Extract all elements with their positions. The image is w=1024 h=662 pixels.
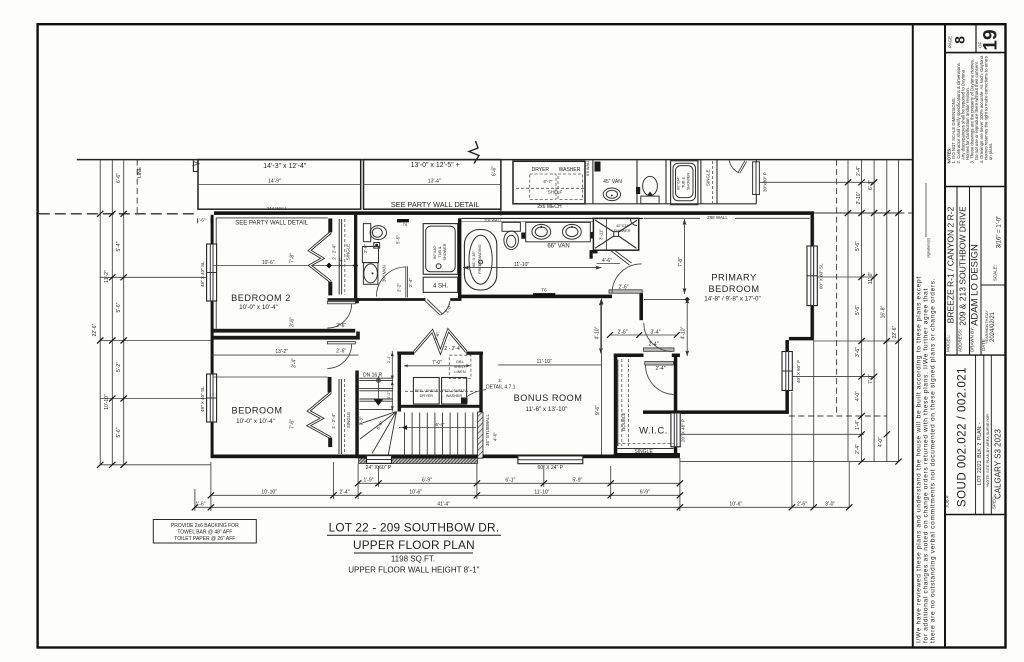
- svg-text:W.I.C.: W.I.C.: [639, 426, 668, 437]
- svg-text:2'-6": 2'-6": [618, 329, 628, 335]
- svg-text:4'-0": 4'-0": [855, 391, 861, 401]
- svg-text:6'8 WALL: 6'8 WALL: [586, 160, 590, 176]
- svg-text:BONUS ROOM: BONUS ROOM: [514, 393, 583, 403]
- svg-text:288 WALL: 288 WALL: [707, 215, 728, 220]
- svg-text:6'-1": 6'-1": [505, 478, 515, 484]
- svg-text:BREEZE R-1 / CANYON 2 R-2: BREEZE R-1 / CANYON 2 R-2: [946, 206, 956, 323]
- svg-text:7'-8": 7'-8": [678, 257, 684, 267]
- svg-text:4'-6": 4'-6": [493, 432, 498, 441]
- svg-text:16'-8": 16'-8": [881, 305, 887, 318]
- svg-text:11'-10": 11'-10": [537, 359, 552, 365]
- svg-text:40" X 60" P: 40" X 60" P: [796, 360, 801, 383]
- svg-text:MODEL:: MODEL:: [946, 335, 951, 352]
- svg-text:22'-6": 22'-6": [892, 325, 898, 338]
- svg-text:4'-10": 4'-10": [594, 326, 600, 339]
- svg-text:TOWEL BAR @ 48" AFF: TOWEL BAR @ 48" AFF: [177, 530, 232, 536]
- svg-text:10'-6": 10'-6": [262, 260, 275, 266]
- svg-text:10'-6": 10'-6": [409, 490, 422, 496]
- svg-text:SHELF: SHELF: [548, 190, 563, 195]
- svg-text:SEE PARTY WALL DETAIL: SEE PARTY WALL DETAIL: [235, 221, 308, 227]
- svg-text:2'-4": 2'-4": [856, 166, 862, 176]
- svg-text:T6: T6: [403, 223, 407, 227]
- svg-text:7'-3": 7'-3": [359, 416, 364, 425]
- svg-text:209 & 213 SOUTHBOW DRIVE: 209 & 213 SOUTHBOW DRIVE: [958, 206, 968, 326]
- svg-text:6'-4": 6'-4": [436, 422, 445, 427]
- svg-text:10'-10": 10'-10": [261, 490, 277, 496]
- svg-text:13'-2": 13'-2": [275, 349, 288, 355]
- svg-text:5'-6": 5'-6": [855, 305, 861, 315]
- svg-text:2'-6": 2'-6": [336, 349, 346, 355]
- svg-text:3'-1": 3'-1": [387, 391, 391, 399]
- svg-text:3:: 3:: [498, 378, 502, 383]
- svg-text:SHOWER: SHOWER: [443, 243, 447, 260]
- svg-text:PROVIDE 2x6 BACKING FOR: PROVIDE 2x6 BACKING FOR: [171, 523, 239, 529]
- svg-text:1'-4": 1'-4": [855, 420, 861, 430]
- svg-text:60" X 60" SL: 60" X 60" SL: [819, 263, 824, 289]
- svg-text:7'-0": 7'-0": [432, 360, 442, 366]
- svg-text:2'-4": 2'-4": [408, 278, 413, 287]
- svg-text:42"X34": 42"X34": [616, 224, 630, 228]
- svg-text:2x6 MECH: 2x6 MECH: [537, 204, 562, 210]
- svg-text:14'-3" x 12'-4": 14'-3" x 12'-4": [263, 163, 307, 170]
- svg-text:4 SH.: 4 SH.: [433, 284, 448, 290]
- svg-text:LINE: LINE: [137, 166, 143, 178]
- svg-text:60"X34": 60"X34": [677, 176, 681, 190]
- svg-text:6'-7": 6'-7": [544, 179, 553, 184]
- svg-text:7'-8": 7'-8": [290, 253, 296, 263]
- svg-text:1'-9": 1'-9": [364, 478, 374, 484]
- svg-text:66" VAN: 66" VAN: [547, 244, 569, 250]
- svg-text:45" VAN: 45" VAN: [603, 179, 622, 185]
- svg-text:LOT 22 - 209 SOUTHBOW DR.: LOT 22 - 209 SOUTHBOW DR.: [329, 521, 500, 535]
- svg-text:ADDRESS:: ADDRESS:: [958, 329, 963, 352]
- svg-text:BEDROOM 2: BEDROOM 2: [231, 293, 291, 303]
- svg-text:10'-0" x 10'-4": 10'-0" x 10'-4": [236, 418, 275, 425]
- svg-text:66" X 36": 66" X 36": [472, 250, 476, 266]
- svg-text:2'-4": 2'-4": [656, 366, 666, 372]
- svg-text:DRYER: DRYER: [532, 167, 550, 173]
- svg-text:3'-4": 3'-4": [651, 329, 661, 335]
- svg-text:4'-10": 4'-10": [681, 326, 687, 339]
- svg-text:20" X 48" P: 20" X 48" P: [681, 419, 686, 442]
- svg-text:6'-9": 6'-9": [422, 478, 432, 484]
- svg-text:SHOWER: SHOWER: [687, 173, 691, 190]
- svg-text:UPPER FLOOR PLAN: UPPER FLOOR PLAN: [353, 538, 475, 552]
- svg-text:4'-0": 4'-0": [878, 437, 884, 447]
- svg-text:5'-6": 5'-6": [116, 302, 122, 312]
- svg-text:2'-2": 2'-2": [397, 283, 402, 292]
- svg-text:3'-6": 3'-6": [855, 347, 861, 357]
- svg-text:2'-4": 2'-4": [855, 444, 861, 454]
- svg-text:2'-4": 2'-4": [340, 490, 350, 496]
- svg-text:SINGLE: SINGLE: [634, 449, 653, 455]
- svg-text:7'-6": 7'-6": [290, 419, 296, 429]
- svg-text:SHOWER: SHOWER: [613, 229, 630, 233]
- svg-text:5'-6": 5'-6": [855, 241, 861, 251]
- svg-text:DRYER: DRYER: [420, 394, 433, 398]
- svg-text:9'-6": 9'-6": [595, 405, 601, 415]
- svg-text:10'-10": 10'-10": [104, 394, 110, 410]
- svg-text:5'-6": 5'-6": [116, 427, 122, 437]
- svg-text:48" X 40" SL: 48" X 40" SL: [200, 261, 205, 287]
- svg-text:1198 SQ.FT.: 1198 SQ.FT.: [391, 555, 435, 564]
- svg-text:10'-0" x 10'-4": 10'-0" x 10'-4": [239, 304, 278, 311]
- svg-text:13'-0" x 12'-5" +: 13'-0" x 12'-5" +: [411, 162, 460, 169]
- svg-text:I/We have reviewed these plans: I/We have reviewed these plans and under…: [916, 276, 923, 643]
- svg-text:there are no outstanding verba: there are no outstanding verbal commitme…: [930, 278, 937, 643]
- svg-text:244 WALL: 244 WALL: [267, 206, 288, 211]
- svg-text:3'-0": 3'-0": [825, 501, 835, 507]
- svg-text:2'-10": 2'-10": [856, 191, 862, 204]
- svg-text:3/16" = 1'-0": 3/16" = 1'-0": [997, 216, 1003, 249]
- svg-text:5'-5": 5'-5": [396, 235, 401, 244]
- svg-text:1'-6": 1'-6": [196, 501, 206, 507]
- svg-text:UPPER FLOOR WALL HEIGHT 8'-1": UPPER FLOOR WALL HEIGHT 8'-1": [348, 566, 479, 575]
- svg-text:8: 8: [952, 36, 968, 44]
- svg-text:2'-6": 2'-6": [797, 501, 807, 507]
- svg-text:3'-6": 3'-6": [289, 317, 295, 327]
- svg-text:SCALE:: SCALE:: [993, 265, 998, 281]
- svg-text:WASHER: WASHER: [446, 394, 463, 398]
- svg-text:13'-4": 13'-4": [428, 179, 441, 185]
- svg-text:2024/02/21: 2024/02/21: [990, 311, 996, 342]
- svg-text:DBL: DBL: [456, 360, 463, 364]
- svg-text:for additional changes as note: for additional changes as noted on chang…: [923, 288, 930, 643]
- svg-text:19: 19: [981, 29, 1002, 50]
- svg-text:TUB &: TUB &: [438, 246, 442, 258]
- svg-text:7'-4": 7'-4": [339, 258, 344, 267]
- svg-text:3'-11": 3'-11": [599, 228, 604, 240]
- svg-text:YEAR/MONTH/DAY: YEAR/MONTH/DAY: [985, 310, 989, 344]
- svg-text:6'-9": 6'-9": [640, 490, 650, 496]
- svg-text:SOUD 002.022 / 002.021: SOUD 002.022 / 002.021: [957, 367, 969, 507]
- svg-text:36" STUBWALL: 36" STUBWALL: [485, 414, 490, 446]
- svg-text:11'-0": 11'-0": [868, 272, 874, 285]
- svg-text:BEDROOM: BEDROOM: [709, 284, 760, 294]
- svg-text:6'-6": 6'-6": [116, 173, 122, 183]
- svg-text:ADAM LO DESIGN: ADAM LO DESIGN: [970, 244, 981, 326]
- svg-text:LINEN: LINEN: [454, 370, 465, 374]
- svg-text:DOUBLE: DOUBLE: [621, 412, 626, 431]
- svg-text:208 WALL: 208 WALL: [484, 219, 502, 223]
- svg-text:FREESTANDING: FREESTANDING: [478, 244, 482, 274]
- svg-text:SEE PARTY WALL DETAIL: SEE PARTY WALL DETAIL: [391, 200, 480, 209]
- svg-text:SINGLE: SINGLE: [346, 412, 351, 429]
- svg-text:2 - 2'-4": 2 - 2'-4": [444, 346, 461, 352]
- svg-text:signature(s): signature(s): [927, 237, 931, 258]
- svg-text:11'-6" x 13'-10": 11'-6" x 13'-10": [526, 406, 568, 413]
- svg-text:SINGLE: SINGLE: [346, 244, 351, 261]
- svg-text:14'-8" / 9'-8" x 17'-0": 14'-8" / 9'-8" x 17'-0": [704, 296, 761, 303]
- svg-text:SINGLE: SINGLE: [706, 169, 711, 186]
- svg-text:2'-6": 2'-6": [336, 323, 346, 329]
- svg-text:11'-10": 11'-10": [514, 262, 529, 268]
- svg-text:22'-6": 22'-6": [92, 323, 98, 336]
- svg-text:4'-6": 4'-6": [602, 258, 612, 264]
- svg-text:JOB #: JOB #: [945, 495, 950, 508]
- svg-text:5'-2": 5'-2": [116, 362, 122, 372]
- svg-text:6'-6": 6'-6": [492, 166, 498, 176]
- svg-text:60" X 24" P: 60" X 24" P: [538, 465, 564, 471]
- svg-text:WASHER: WASHER: [559, 167, 581, 173]
- svg-text:10'-6": 10'-6": [729, 501, 742, 507]
- svg-text:2'-4": 2'-4": [387, 355, 391, 363]
- svg-text:DRAWN BY:: DRAWN BY:: [970, 327, 975, 352]
- svg-text:CALGARY S3 2023: CALGARY S3 2023: [994, 428, 1003, 499]
- svg-text:14'-9": 14'-9": [268, 179, 281, 185]
- svg-text:TOILET PAPER @ 26" AFF: TOILET PAPER @ 26" AFF: [174, 536, 235, 542]
- svg-text:60"X30": 60"X30": [433, 245, 437, 259]
- svg-text:11'-2": 11'-2": [104, 270, 110, 283]
- svg-text:*NOTE: SITE PLAN BY AREA SURVE: *NOTE: SITE PLAN BY AREA SURVEYOR': [986, 413, 990, 487]
- svg-text:2'-8": 2'-8": [363, 244, 368, 253]
- svg-text:5'-4": 5'-4": [116, 241, 122, 251]
- svg-text:2 - 2'-4": 2 - 2'-4": [332, 244, 337, 260]
- svg-text:7'-0": 7'-0": [868, 374, 874, 384]
- svg-text:48" X 40" SL: 48" X 40" SL: [200, 386, 205, 412]
- svg-text:T6: T6: [541, 287, 547, 292]
- svg-text:2 - 2'-4": 2 - 2'-4": [331, 413, 336, 429]
- svg-text:11'-10": 11'-10": [534, 490, 549, 496]
- svg-text:6'-3": 6'-3": [868, 180, 874, 190]
- svg-text:3'-4": 3'-4": [292, 358, 298, 368]
- svg-text:LOT: 22/21 BLK: 2 PLAN: -: LOT: 22/21 BLK: 2 PLAN: -: [977, 422, 983, 485]
- svg-text:5'-9": 5'-9": [572, 478, 582, 484]
- svg-text:2'-6": 2'-6": [619, 285, 629, 291]
- svg-text:PRIMARY: PRIMARY: [711, 273, 756, 283]
- svg-text:DN 16 R: DN 16 R: [363, 372, 383, 378]
- svg-text:BEDROOM: BEDROOM: [232, 406, 283, 416]
- svg-text:SHELF: SHELF: [454, 365, 467, 369]
- svg-text:41'-4": 41'-4": [437, 501, 450, 507]
- svg-text:on plans.: on plans.: [988, 143, 993, 160]
- svg-text:TUB &: TUB &: [682, 176, 686, 188]
- svg-text:DETAIL 4.7.1: DETAIL 4.7.1: [486, 385, 516, 391]
